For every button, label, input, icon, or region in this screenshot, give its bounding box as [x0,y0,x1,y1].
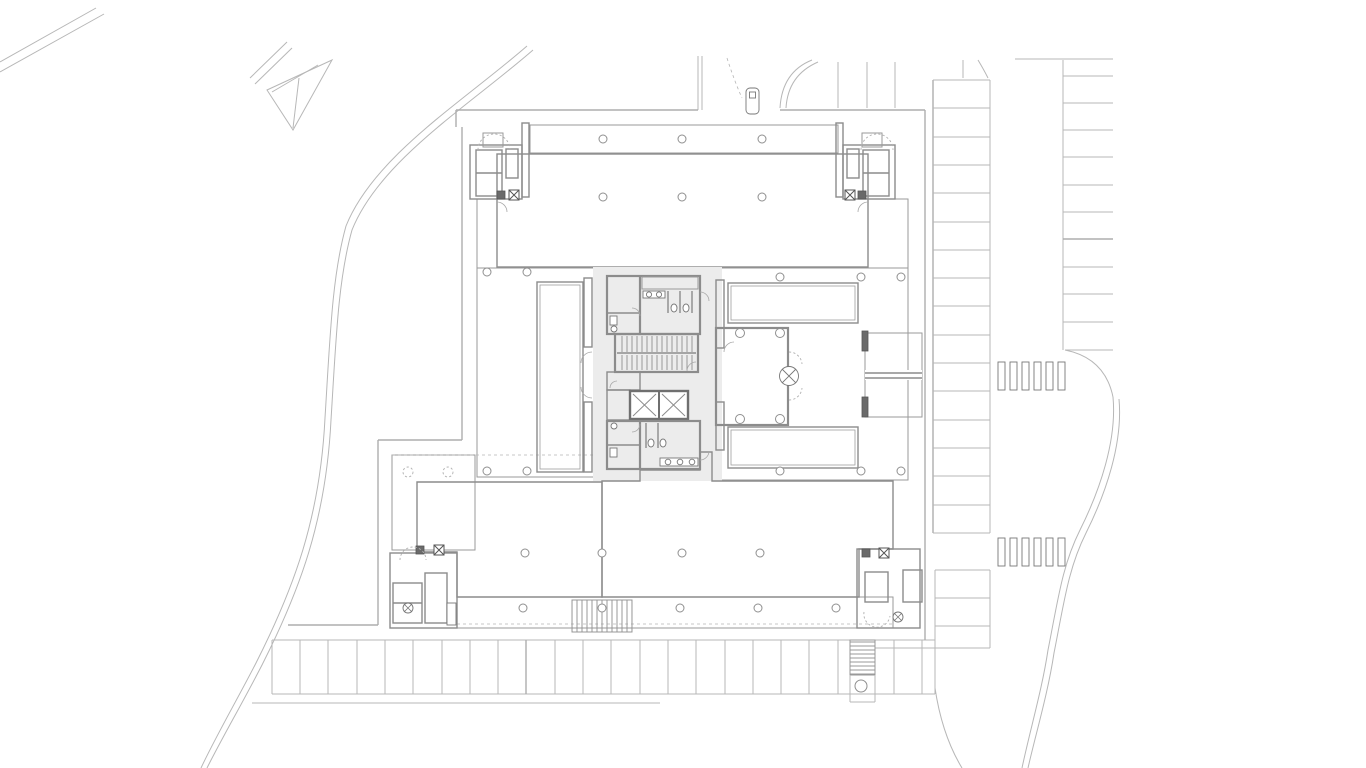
floor-plan-page [0,0,1366,768]
toilet-icon [660,439,666,447]
sink-icon [656,292,661,297]
toilet-icon [648,439,654,447]
toilet-icon [671,304,677,312]
car [746,88,759,114]
sink-icon [689,459,695,465]
floor-plan-canvas [0,0,1366,768]
sink-icon [665,459,671,465]
sink-icon [677,459,683,465]
revolving-door-icon [780,367,799,386]
sink-icon [646,292,651,297]
stair-core [615,334,698,372]
toilet-icon [683,304,689,312]
